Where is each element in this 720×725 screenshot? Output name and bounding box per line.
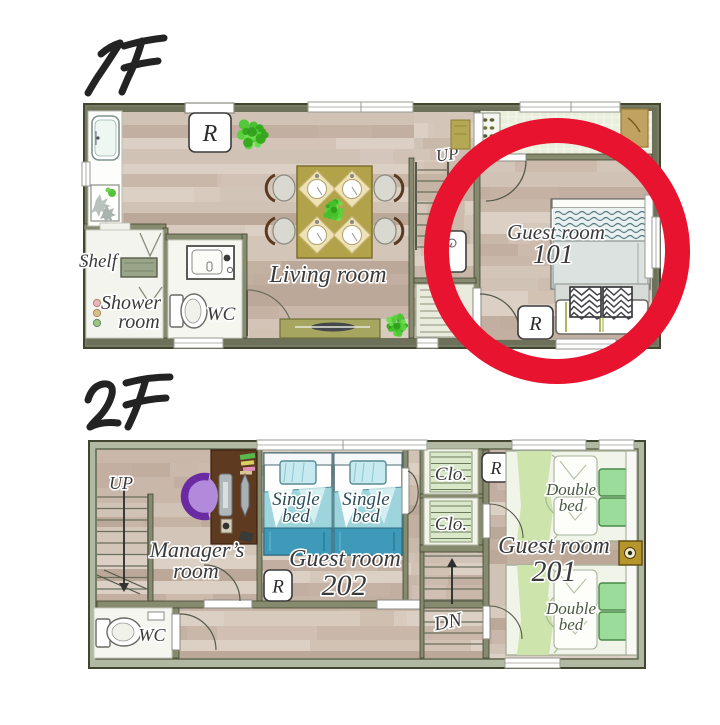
svg-text:WC: WC xyxy=(139,625,167,645)
svg-text:101: 101 xyxy=(533,239,574,269)
svg-text:bed: bed xyxy=(559,615,584,634)
svg-text:bed: bed xyxy=(352,506,380,527)
svg-text:bed: bed xyxy=(282,506,310,527)
svg-text:room: room xyxy=(173,558,219,583)
svg-text:R: R xyxy=(528,313,541,335)
svg-text:R: R xyxy=(202,121,218,147)
svg-text:Living room: Living room xyxy=(268,262,386,288)
svg-text:WC: WC xyxy=(207,304,236,325)
svg-text:bed: bed xyxy=(559,496,584,515)
svg-text:R: R xyxy=(271,576,284,597)
svg-text:R: R xyxy=(490,458,502,478)
svg-text:Clo.: Clo. xyxy=(435,514,467,535)
svg-text:Shelf: Shelf xyxy=(79,251,120,272)
svg-text:UP: UP xyxy=(109,473,133,493)
svg-text:room: room xyxy=(118,311,159,333)
svg-text:202: 202 xyxy=(322,569,367,602)
svg-text:Clo.: Clo. xyxy=(435,464,467,485)
svg-text:201: 201 xyxy=(532,555,577,588)
